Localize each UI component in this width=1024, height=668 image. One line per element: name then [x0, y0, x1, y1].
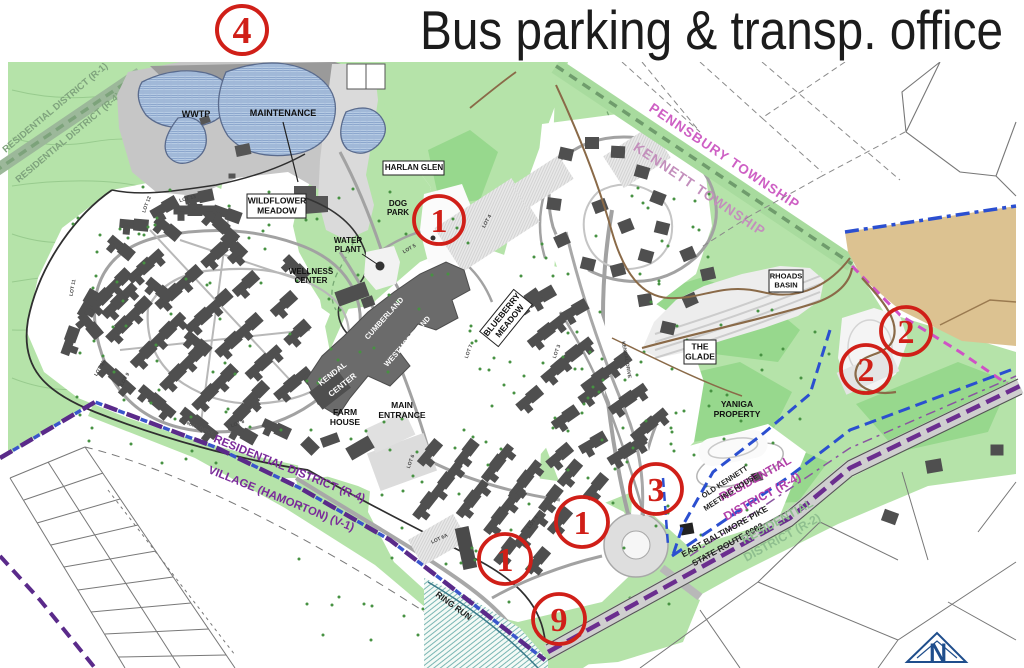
svg-text:YANIGA: YANIGA — [721, 399, 753, 409]
svg-text:WELLNESS: WELLNESS — [289, 267, 334, 276]
svg-text:1: 1 — [431, 203, 448, 240]
svg-text:HARLAN GLEN: HARLAN GLEN — [385, 163, 443, 172]
svg-text:4: 4 — [233, 10, 252, 52]
svg-text:PROPERTY: PROPERTY — [714, 409, 761, 419]
svg-text:9: 9 — [551, 602, 568, 639]
svg-text:WATER: WATER — [334, 236, 363, 245]
svg-text:PARK: PARK — [387, 208, 409, 217]
svg-text:BASIN: BASIN — [774, 281, 797, 290]
svg-text:DOG: DOG — [389, 199, 407, 208]
svg-text:ENTRANCE: ENTRANCE — [378, 410, 426, 420]
svg-text:MAINTENANCE: MAINTENANCE — [250, 108, 317, 118]
svg-text:1: 1 — [574, 505, 591, 542]
svg-text:MEADOW: MEADOW — [257, 206, 298, 216]
svg-text:1: 1 — [497, 542, 514, 579]
svg-text:WWTP: WWTP — [182, 109, 211, 119]
svg-text:MAIN: MAIN — [391, 400, 413, 410]
svg-text:N: N — [929, 639, 947, 667]
svg-text:RHOADS: RHOADS — [770, 272, 803, 281]
svg-text:2: 2 — [898, 314, 915, 351]
svg-text:THE: THE — [692, 342, 709, 352]
svg-text:PLANT: PLANT — [335, 245, 362, 254]
svg-text:Bus parking & transp. office: Bus parking & transp. office — [420, 0, 1003, 61]
svg-text:FARM: FARM — [333, 407, 357, 417]
svg-text:2: 2 — [858, 352, 875, 389]
svg-text:CENTER: CENTER — [295, 276, 328, 285]
svg-text:3: 3 — [648, 472, 665, 509]
svg-text:GLADE: GLADE — [685, 352, 715, 362]
svg-text:HOUSE: HOUSE — [330, 417, 361, 427]
svg-text:WILDFLOWER: WILDFLOWER — [248, 196, 307, 206]
